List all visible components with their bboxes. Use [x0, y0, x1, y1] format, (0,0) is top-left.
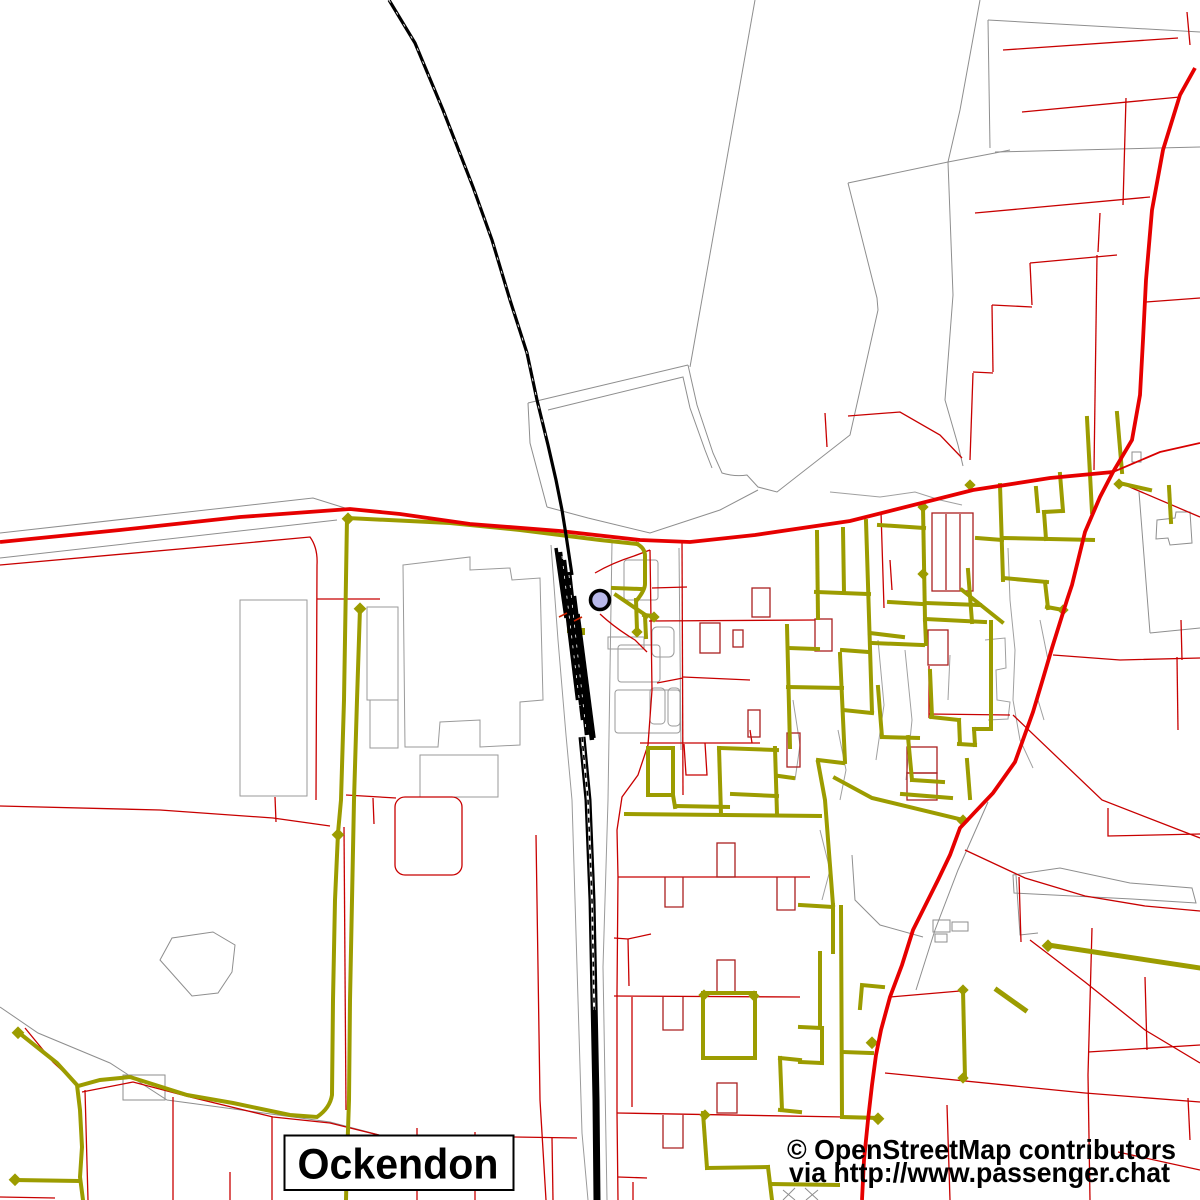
svg-text:via http://www.passenger.chat: via http://www.passenger.chat	[789, 1157, 1170, 1188]
svg-text:Ockendon: Ockendon	[298, 1141, 499, 1189]
